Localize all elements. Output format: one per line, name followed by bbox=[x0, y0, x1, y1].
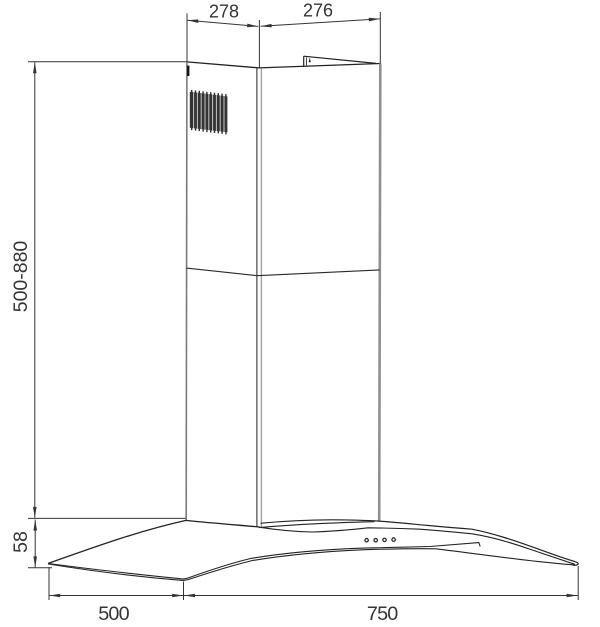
svg-text:276: 276 bbox=[303, 1, 333, 21]
svg-text:500: 500 bbox=[98, 603, 129, 625]
svg-text:58: 58 bbox=[10, 531, 32, 553]
svg-text:750: 750 bbox=[367, 603, 398, 625]
svg-text:500-880: 500-880 bbox=[10, 241, 32, 313]
svg-text:278: 278 bbox=[209, 2, 239, 22]
